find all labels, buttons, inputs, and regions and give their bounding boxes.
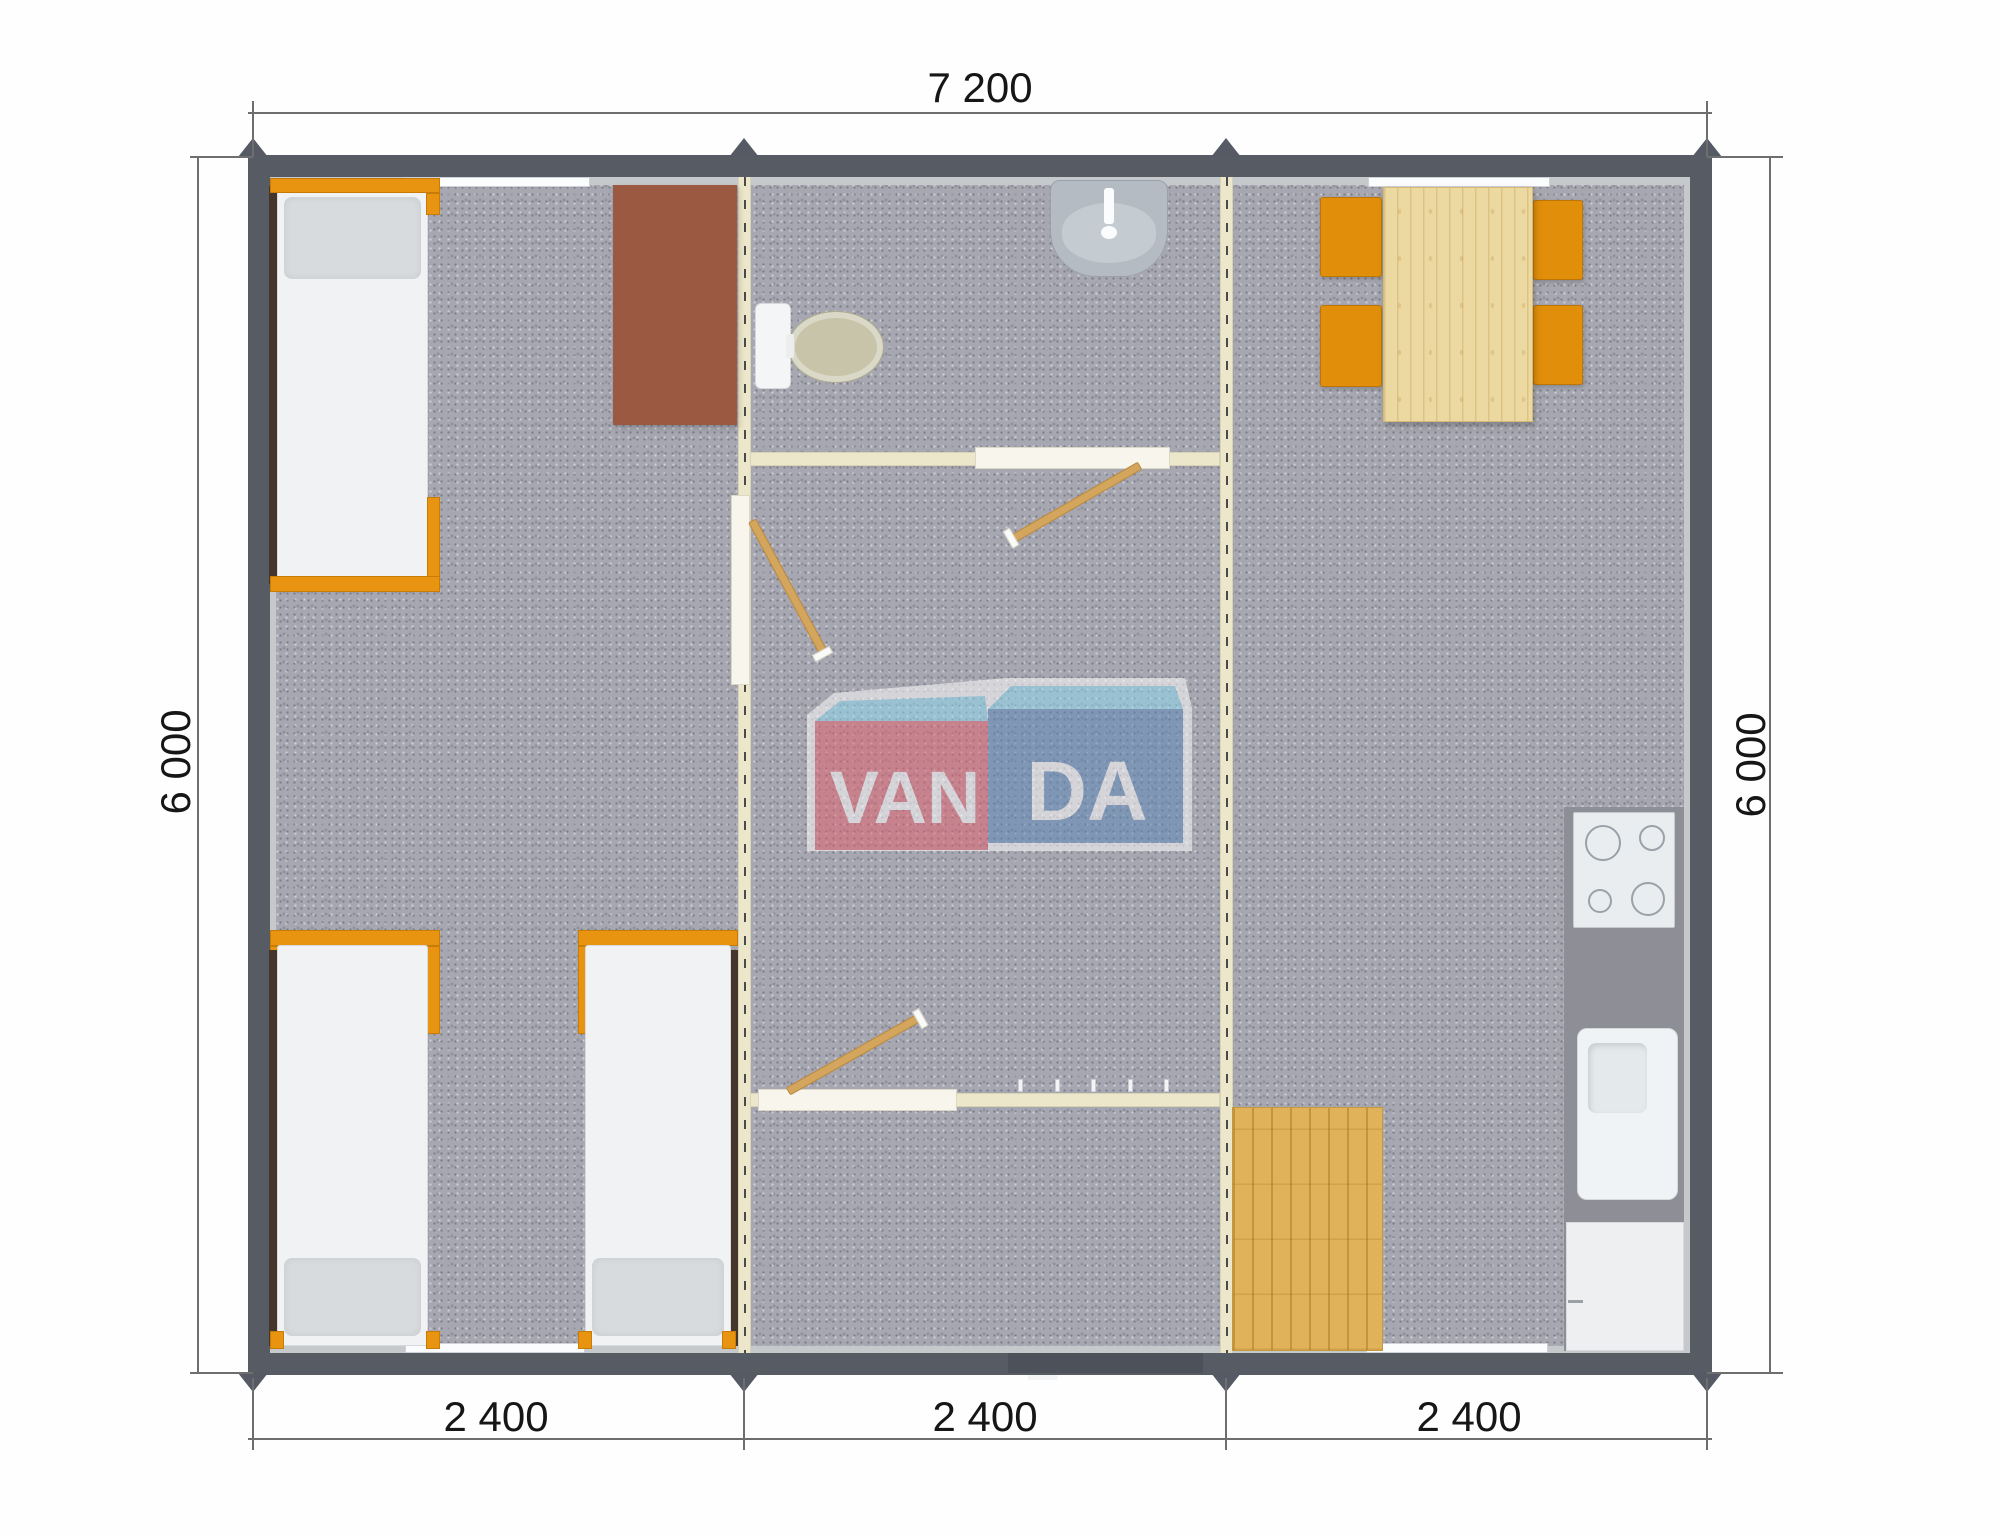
coat-hook: [1018, 1079, 1023, 1092]
cabinet-handle: [1568, 1300, 1583, 1303]
dimension-label-module-1: 2 400: [443, 1393, 548, 1441]
bedroom-door-casing: [731, 495, 750, 685]
burner-icon: [1631, 882, 1665, 916]
faucet-knob: [1101, 226, 1117, 239]
toilet-seat-hinge: [786, 334, 794, 358]
coat-hook: [1128, 1079, 1133, 1092]
kitchen-cabinet: [1566, 1222, 1684, 1351]
bed-side-rail: [730, 950, 738, 1346]
extension-line: [190, 156, 253, 158]
bed-frame-corner: [426, 193, 440, 215]
entrance-door: [1008, 1353, 1203, 1373]
dining-chair: [1320, 305, 1382, 387]
coat-hook: [1164, 1079, 1169, 1092]
dimension-line-top: [248, 112, 1712, 114]
bed-pillow: [284, 197, 421, 279]
extension-line: [252, 101, 254, 157]
bed-frame-corner: [426, 1331, 440, 1349]
dimension-label-width: 7 200: [927, 64, 1032, 112]
bed-frame-bar: [578, 930, 738, 946]
entry-wood-mat: [1232, 1107, 1383, 1351]
bed-frame-corner: [722, 1331, 736, 1349]
burner-icon: [1588, 889, 1612, 913]
bed-side-rail: [269, 950, 277, 1346]
bed-side-rail: [269, 186, 277, 584]
extension-line: [1707, 156, 1783, 158]
dining-table: [1383, 187, 1533, 422]
extension-line: [1707, 1372, 1783, 1374]
dimension-label-height-left: 6 000: [152, 709, 200, 814]
bed-frame-bar: [270, 576, 440, 592]
wardrobe-desk: [613, 185, 737, 425]
faucet-icon: [1104, 188, 1114, 224]
burner-icon: [1639, 825, 1665, 851]
bed-frame-bar: [270, 930, 440, 946]
bed-pillow: [592, 1258, 724, 1336]
extension-line: [1706, 1378, 1708, 1450]
vanda-logo: VAN DA: [805, 677, 1201, 869]
burner-icon: [1585, 825, 1621, 861]
bathroom-door-casing: [975, 447, 1170, 469]
module-seam-left: [738, 177, 751, 1353]
dining-chair: [1533, 305, 1583, 385]
bed-pillow: [284, 1258, 421, 1336]
dimension-label-module-3: 2 400: [1416, 1393, 1521, 1441]
toilet-bowl: [788, 311, 884, 383]
window-top-right: [1368, 177, 1550, 187]
seam-marker: [1211, 138, 1241, 157]
logo-text-van: VAN: [830, 756, 981, 839]
extension-line: [1225, 1378, 1227, 1450]
kitchen-sink-basin: [1588, 1043, 1647, 1113]
bed-frame-rail: [426, 946, 440, 1034]
floor-plan-canvas: VAN DA 7 200 6 000 6 000 2 400 2 400 2 4…: [0, 0, 2000, 1537]
extension-line: [743, 1378, 745, 1450]
bed-frame-corner: [270, 1331, 284, 1349]
logo-text-da: DA: [1026, 744, 1147, 838]
door-handle: [1028, 1375, 1058, 1380]
seam-marker: [729, 138, 759, 157]
dining-chair: [1533, 200, 1583, 280]
window-bottom-right: [1366, 1343, 1548, 1353]
dimension-label-module-2: 2 400: [932, 1393, 1037, 1441]
extension-line: [1706, 101, 1708, 157]
extension-line: [190, 1372, 253, 1374]
coat-hook: [1055, 1079, 1060, 1092]
coat-hook: [1091, 1079, 1096, 1092]
dining-chair: [1320, 197, 1382, 277]
extension-line: [252, 1378, 254, 1450]
wall-liner-right: [1684, 177, 1690, 1353]
dimension-label-height-right: 6 000: [1727, 712, 1775, 817]
bed-frame-corner: [578, 1331, 592, 1349]
bed-frame-bar: [270, 178, 440, 193]
logo-box-top-right: [988, 686, 1183, 709]
